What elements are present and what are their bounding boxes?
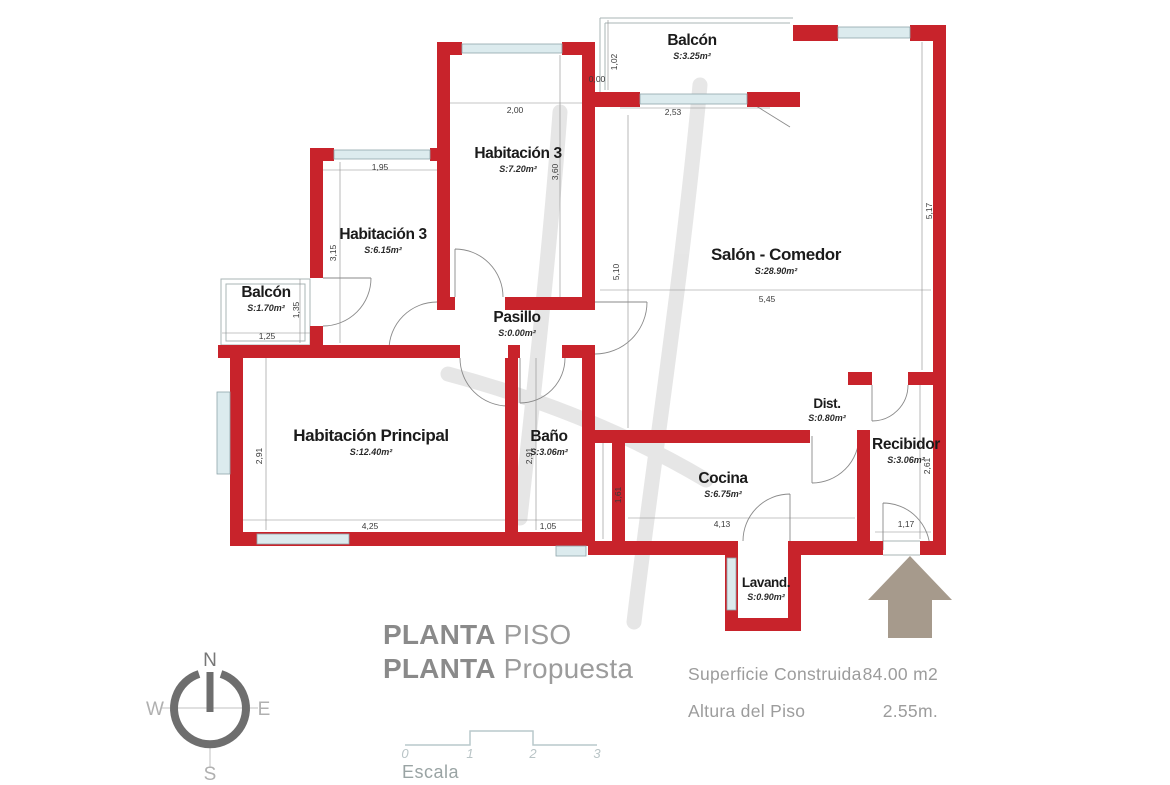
room-label-salon-comedor: Salón - Comedor S:28.90m²: [711, 246, 841, 276]
dim-label: 5,10: [611, 264, 621, 281]
title-line1-rest-text: PISO: [504, 619, 572, 650]
room-label-habitacion3-left: Habitación 3 S:6.15m²: [339, 227, 426, 255]
room-name: Balcón: [241, 285, 290, 301]
room-name: Habitación 3: [474, 146, 561, 162]
title-line-1: PLANTA PISO: [383, 618, 633, 652]
title-line2-strong: PLANTA: [383, 653, 496, 684]
info-block: Superficie Construida 84.00 m2 Altura de…: [688, 664, 938, 738]
dim-label: 5,45: [759, 294, 776, 304]
room-area: S:6.15m²: [339, 245, 426, 255]
floor-plan-page: N S W E 0 1 2 3 Balcón S:3.25m² Habitaci…: [0, 0, 1170, 785]
compass-north-label: N: [203, 650, 217, 671]
dimension-lines: [222, 20, 931, 539]
room-area: S:0.90m²: [742, 592, 790, 602]
dim-label: 1,35: [291, 302, 301, 319]
room-area: S:3.06m²: [530, 447, 568, 457]
scale-caption: Escala: [402, 762, 459, 783]
room-area: S:6.75m²: [698, 489, 747, 499]
dim-label: 4,13: [714, 519, 731, 529]
room-label-recibidor: Recibidor S:3.06m²: [872, 437, 940, 465]
title-line1-strong: PLANTA: [383, 619, 496, 650]
room-area: S:12.40m²: [293, 447, 448, 457]
dim-label: 5,17: [924, 203, 934, 220]
scale-tick-3: 3: [593, 746, 601, 761]
room-area: S:28.90m²: [711, 266, 841, 276]
scale-bar: 0 1 2 3: [401, 731, 601, 761]
dim-label: 1,25: [259, 331, 276, 341]
room-label-balcon-top: Balcón S:3.25m²: [667, 33, 716, 61]
room-name: Pasillo: [493, 310, 540, 326]
room-label-pasillo: Pasillo S:0.00m²: [493, 310, 540, 338]
room-area: S:1.70m²: [241, 303, 290, 313]
info-label: Superficie Construida: [688, 664, 862, 685]
compass-rose: N S W E: [146, 650, 270, 785]
scale-tick-0: 0: [401, 746, 409, 761]
dim-label: 1,05: [540, 521, 557, 531]
room-name: Lavand.: [742, 576, 790, 590]
title-line2-rest: [496, 653, 504, 684]
info-value: 84.00 m2: [863, 664, 938, 685]
room-label-cocina: Cocina S:6.75m²: [698, 471, 747, 499]
dim-label: 1,02: [609, 54, 619, 71]
scale-tick-1: 1: [466, 746, 473, 761]
room-name: Habitación 3: [339, 227, 426, 243]
dim-label: 1,17: [898, 519, 915, 529]
room-name: Balcón: [667, 33, 716, 49]
compass-west-label: W: [146, 699, 164, 720]
room-label-habitacion-principal: Habitación Principal S:12.40m²: [293, 427, 448, 457]
dim-label: 2,91: [254, 448, 264, 465]
room-name: Baño: [530, 429, 568, 445]
dim-label: 3,15: [328, 245, 338, 262]
room-name: Salón - Comedor: [711, 246, 841, 264]
scale-tick-2: 2: [528, 746, 537, 761]
title-line1-rest: [496, 619, 504, 650]
dim-label: 1,95: [372, 162, 389, 172]
dim-label: 0,00: [589, 74, 606, 84]
room-area: S:7.20m²: [474, 164, 561, 174]
info-value: 2.55m.: [883, 701, 938, 722]
room-name: Habitación Principal: [293, 427, 448, 445]
compass-south-label: S: [204, 764, 217, 785]
dim-label: 2,00: [507, 105, 524, 115]
room-area: S:3.25m²: [667, 51, 716, 61]
title-line2-rest-text: Propuesta: [504, 653, 633, 684]
balcony-outlines: [221, 18, 920, 555]
compass-east-label: E: [258, 699, 271, 720]
room-name: Recibidor: [872, 437, 940, 453]
info-row-altura: Altura del Piso 2.55m.: [688, 701, 938, 722]
title-line-2: PLANTA Propuesta: [383, 652, 633, 686]
room-label-dist: Dist. S:0.80m²: [808, 397, 846, 423]
dim-label: 1,61: [613, 487, 623, 504]
room-label-balcon-left: Balcón S:1.70m²: [241, 285, 290, 313]
dim-label: 2,53: [665, 107, 682, 117]
room-area: S:3.06m²: [872, 455, 940, 465]
room-name: Cocina: [698, 471, 747, 487]
info-label: Altura del Piso: [688, 701, 805, 722]
door-arcs: [323, 104, 930, 550]
room-name: Dist.: [808, 397, 846, 411]
room-label-bano: Baño S:3.06m²: [530, 429, 568, 457]
room-label-habitacion3-top: Habitación 3 S:7.20m²: [474, 146, 561, 174]
room-area: S:0.80m²: [808, 413, 846, 423]
drawing-title: PLANTA PISO PLANTA Propuesta: [383, 618, 633, 686]
info-row-superficie: Superficie Construida 84.00 m2: [688, 664, 938, 685]
room-label-lavanderia: Lavand. S:0.90m²: [742, 576, 790, 602]
room-area: S:0.00m²: [493, 328, 540, 338]
dim-label: 4,25: [362, 521, 379, 531]
entrance-arrow: [868, 556, 952, 638]
